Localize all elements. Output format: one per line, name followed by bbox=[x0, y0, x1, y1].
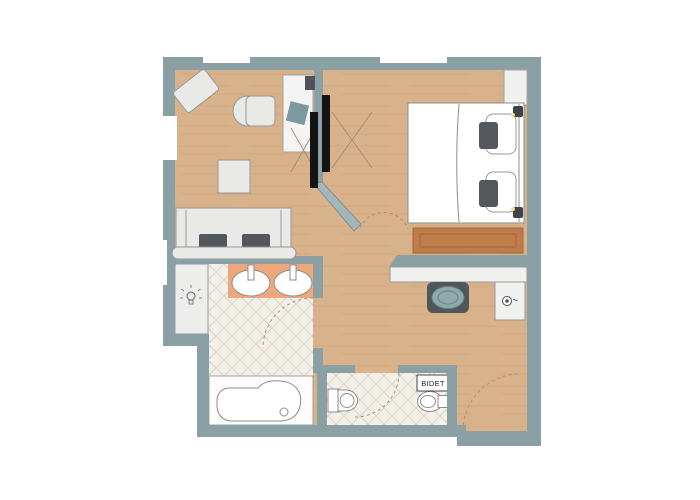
double-bed bbox=[408, 103, 524, 223]
wall-bottom-mid bbox=[317, 425, 466, 437]
window-left bbox=[160, 116, 177, 160]
wall-left bbox=[163, 70, 175, 346]
wall-bath-door-stub-top bbox=[313, 256, 323, 298]
tv-bedroom-side bbox=[322, 95, 330, 172]
wall-bottom-left bbox=[197, 425, 317, 437]
wall-wc-top-right bbox=[398, 365, 457, 373]
pillow-top bbox=[479, 122, 498, 149]
toilet bbox=[328, 389, 358, 412]
wall-wc-right bbox=[447, 373, 457, 425]
wall-bath-door-stub-bottom bbox=[313, 348, 323, 373]
wooden-bench bbox=[413, 228, 523, 253]
bidet-label: BIDET bbox=[421, 379, 445, 388]
wall-wc-top-left bbox=[322, 365, 355, 373]
console-desk bbox=[390, 267, 527, 282]
desk-chair bbox=[233, 96, 275, 126]
wall-bottom-right bbox=[457, 431, 541, 446]
wall-step-bottom-left bbox=[163, 334, 209, 346]
wardrobe bbox=[504, 70, 527, 105]
outside-mask bbox=[163, 346, 197, 460]
stool bbox=[427, 282, 469, 313]
window-top-right bbox=[380, 57, 447, 63]
window-left-notch bbox=[160, 240, 167, 285]
pillow-bottom bbox=[479, 180, 498, 207]
window-top-left bbox=[203, 57, 250, 63]
tv-living-side bbox=[310, 112, 318, 188]
wall-wc-left bbox=[317, 373, 327, 425]
wall-right bbox=[527, 57, 541, 446]
bidet-label-box: BIDET bbox=[417, 375, 449, 391]
wall-bath-left bbox=[197, 346, 209, 437]
wall-bedroom-lower bbox=[389, 255, 527, 267]
side-table bbox=[218, 160, 250, 193]
monitor bbox=[305, 76, 315, 90]
sofa bbox=[172, 208, 296, 259]
light-niche bbox=[175, 264, 208, 334]
floor-plan: BIDET bbox=[0, 0, 700, 500]
